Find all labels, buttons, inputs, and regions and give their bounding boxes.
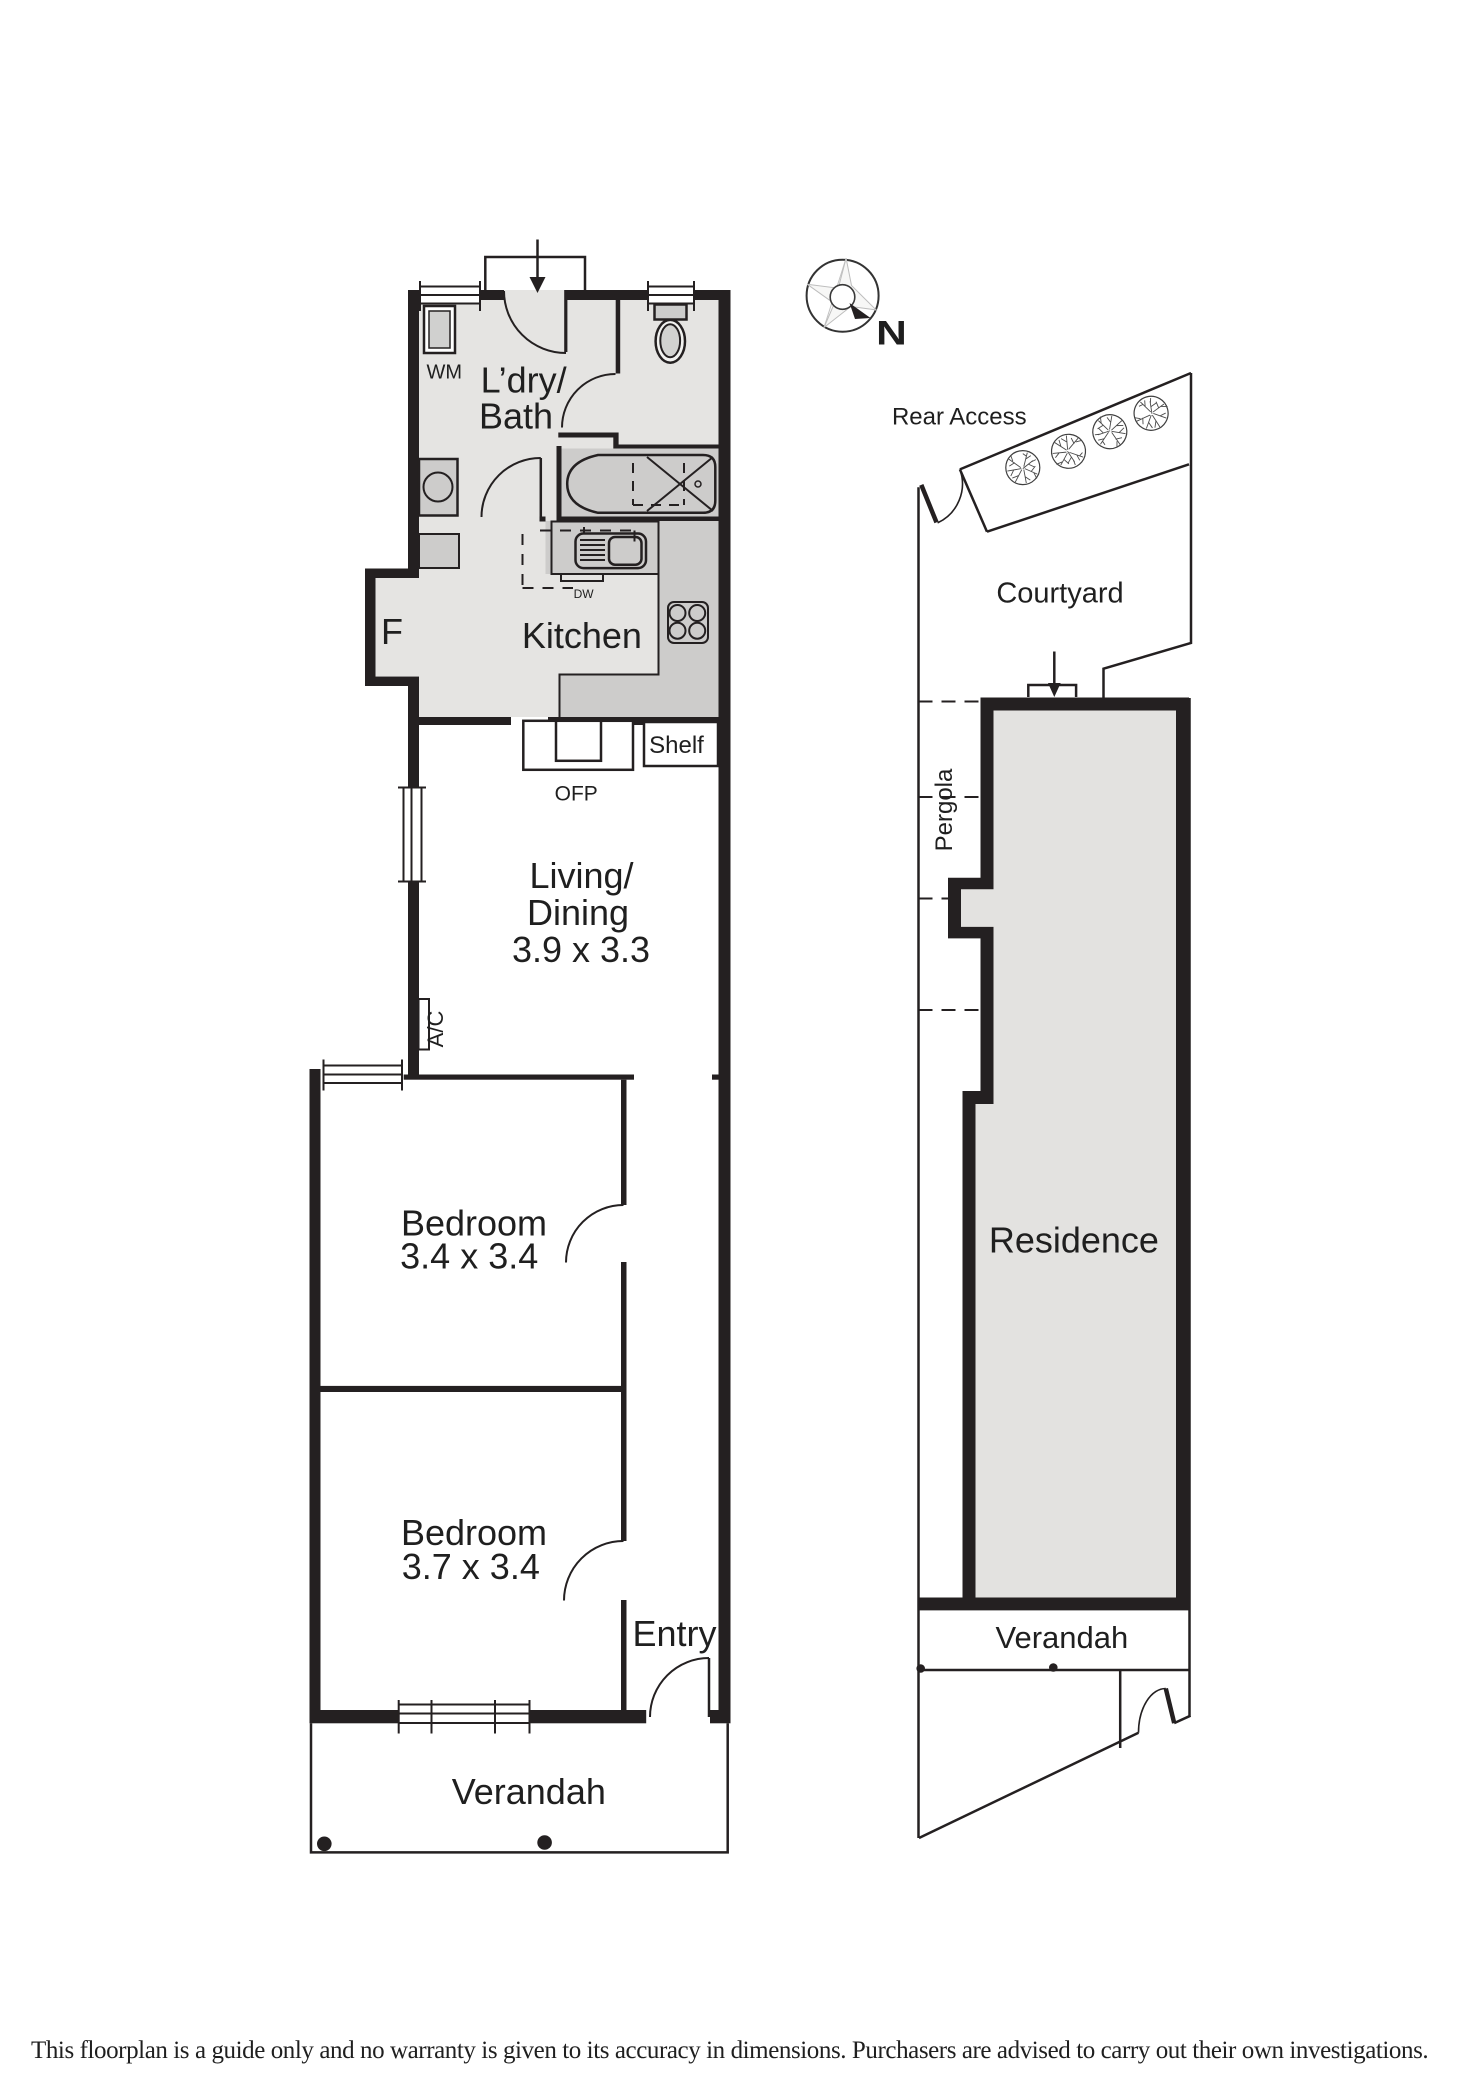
svg-text:OFP: OFP (555, 782, 598, 805)
svg-text:Courtyard: Courtyard (996, 577, 1123, 609)
svg-text:DW: DW (574, 587, 595, 601)
svg-text:3.4 x 3.4: 3.4 x 3.4 (400, 1235, 538, 1276)
svg-text:Entry: Entry (632, 1613, 716, 1654)
svg-text:Pergola: Pergola (931, 768, 958, 851)
svg-text:Shelf: Shelf (649, 732, 704, 759)
svg-text:Kitchen: Kitchen (522, 615, 642, 656)
svg-text:3.7 x 3.4: 3.7 x 3.4 (402, 1546, 540, 1587)
svg-text:N: N (876, 315, 907, 353)
svg-text:3.9 x 3.3: 3.9 x 3.3 (512, 929, 650, 970)
svg-text:Residence: Residence (989, 1219, 1159, 1260)
svg-text:Verandah: Verandah (452, 1771, 606, 1812)
svg-text:Bath: Bath (479, 395, 553, 436)
svg-text:A/C: A/C (423, 1011, 448, 1048)
svg-text:L’dry/: L’dry/ (481, 359, 567, 400)
svg-text:F: F (381, 611, 403, 652)
svg-text:WM: WM (427, 362, 463, 384)
svg-text:Living/: Living/ (529, 855, 633, 896)
svg-text:Dining: Dining (527, 892, 629, 933)
svg-text:Verandah: Verandah (996, 1620, 1129, 1655)
svg-text:Rear Access: Rear Access (892, 404, 1027, 431)
svg-text:This floorplan is a guide only: This floorplan is a guide only and no wa… (31, 2037, 1428, 2064)
